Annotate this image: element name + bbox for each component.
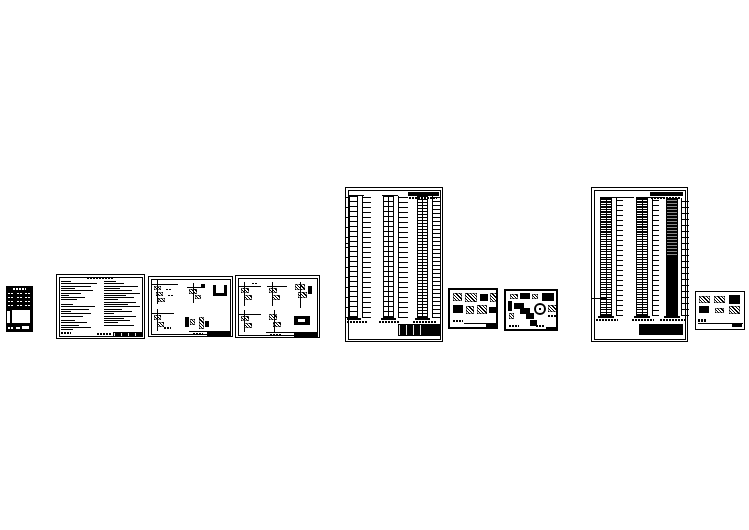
note-text-line	[104, 281, 116, 282]
note-text-line	[61, 309, 89, 310]
hatch-mark	[295, 284, 305, 290]
line-mark	[152, 284, 178, 285]
hatch-mark	[241, 288, 249, 293]
smudge-mark	[193, 333, 203, 335]
note-text-line	[61, 320, 75, 321]
reinforcement-tower	[666, 198, 678, 316]
hatch-mark	[699, 296, 710, 303]
note-text-line	[104, 290, 132, 291]
smudge-mark	[660, 319, 685, 321]
solid-mark	[224, 285, 227, 296]
hatch-mark	[465, 293, 477, 302]
note-text-line	[61, 283, 97, 284]
solid-mark	[213, 285, 216, 296]
line-mark	[267, 286, 287, 287]
hatch-mark	[244, 295, 252, 300]
smudge-mark	[596, 319, 618, 321]
solid-mark	[12, 310, 30, 323]
solid-mark	[486, 324, 497, 328]
note-text-line	[104, 309, 122, 310]
line-mark	[187, 287, 205, 288]
line-mark	[152, 313, 174, 314]
solid-mark	[526, 313, 534, 319]
hatch-mark	[532, 294, 538, 299]
smudge-mark	[97, 333, 111, 335]
solid-mark	[546, 327, 557, 331]
note-text-line	[104, 302, 136, 303]
note-text-line	[104, 293, 140, 294]
solid-mark	[508, 301, 512, 311]
hatch-mark	[548, 305, 557, 312]
ring-mark	[534, 303, 546, 315]
note-text-line	[104, 304, 128, 305]
line-mark	[157, 309, 158, 331]
line-mark	[244, 310, 245, 332]
hatch-mark	[269, 288, 277, 293]
solid-mark	[207, 332, 231, 336]
smudge-mark	[13, 288, 26, 290]
floor-tick-marks	[652, 198, 659, 316]
smudge-mark	[25, 305, 31, 306]
sheet-thumbnail-stair-details-2	[235, 275, 320, 338]
note-text-line	[61, 304, 73, 305]
hatch-mark	[199, 317, 204, 329]
note-text-line	[104, 295, 126, 296]
smudge-mark	[8, 293, 14, 294]
smudge-mark	[25, 297, 31, 298]
hatch-mark	[715, 308, 724, 313]
solid-mark	[201, 284, 205, 287]
floor-tick-marks	[616, 198, 623, 316]
note-text-line	[61, 306, 95, 307]
smudge-mark	[25, 301, 31, 302]
hatch-mark	[298, 292, 307, 298]
smudge-mark	[17, 293, 23, 294]
floor-tick-marks	[398, 196, 408, 318]
sheet-thumbnail-schedule	[6, 286, 33, 332]
smudge-mark	[166, 289, 172, 290]
note-text-line	[61, 293, 81, 294]
note-text-line	[61, 325, 79, 326]
line-mark	[193, 283, 194, 303]
solid-mark	[381, 318, 396, 320]
smudge-mark	[25, 293, 31, 294]
note-text-line	[104, 299, 118, 300]
note-text-line	[104, 318, 124, 319]
solid-mark	[480, 294, 488, 301]
hatch-mark	[195, 295, 201, 299]
solid-mark	[16, 327, 20, 329]
floor-tick-marks	[346, 196, 350, 318]
smudge-mark	[536, 325, 544, 327]
note-text-line	[61, 281, 71, 282]
hatch-mark	[241, 316, 249, 321]
solid-mark	[347, 318, 361, 320]
solid-mark	[453, 305, 463, 313]
tb-mark	[398, 324, 441, 336]
solid-mark	[205, 321, 209, 327]
note-text-line	[104, 320, 130, 321]
solid-mark	[7, 311, 10, 323]
smudge-mark	[548, 315, 556, 317]
solid-mark	[22, 326, 29, 329]
solid-mark	[732, 324, 742, 327]
line-mark	[157, 280, 158, 304]
line-mark	[300, 282, 301, 308]
sheet-thumbnail-stair-details-1	[148, 276, 233, 337]
smudge-mark	[270, 334, 282, 336]
smudge-mark	[164, 327, 171, 329]
note-text-line	[61, 288, 75, 289]
smudge-mark	[453, 320, 463, 322]
note-text-line	[61, 286, 91, 287]
sheet-thumbnail-general-notes	[56, 274, 145, 339]
solid-mark	[598, 316, 614, 318]
note-text-line	[61, 329, 73, 330]
floor-tick-marks	[362, 196, 371, 318]
line-mark	[266, 332, 318, 333]
smudge-mark	[168, 295, 174, 296]
hatch-mark	[272, 295, 280, 300]
smudge-mark	[8, 301, 14, 302]
hatch-mark	[190, 319, 195, 325]
line-mark	[244, 282, 245, 306]
solid-mark	[298, 319, 305, 322]
hatch-mark	[729, 306, 740, 314]
smudge-mark	[698, 319, 706, 322]
floor-tick-marks	[432, 196, 441, 318]
solid-mark	[308, 286, 312, 294]
note-text-line	[104, 288, 120, 289]
reinforcement-tower	[417, 196, 428, 318]
hatch-mark	[157, 322, 164, 327]
line-mark	[272, 282, 273, 306]
tb-mark	[113, 332, 143, 337]
hatch-mark	[156, 292, 163, 296]
hatch-mark	[509, 313, 514, 319]
smudge-mark	[8, 327, 14, 329]
solid-mark	[294, 333, 318, 337]
line-mark	[464, 323, 497, 324]
cad-drawing-preview-canvas	[0, 0, 749, 530]
note-text-line	[104, 283, 124, 284]
note-text-line	[61, 295, 69, 296]
line-mark	[189, 331, 231, 332]
hatch-mark	[714, 296, 725, 303]
sheet-thumbnail-details-b	[504, 289, 558, 331]
solid-mark	[729, 295, 740, 304]
smudge-mark	[379, 321, 400, 323]
note-text-line	[104, 311, 132, 312]
line-mark	[274, 310, 275, 332]
solid-mark	[664, 316, 680, 318]
floor-tick-marks	[681, 198, 689, 316]
solid-mark	[213, 293, 227, 296]
tb-mark	[639, 324, 683, 335]
solid-mark	[415, 318, 430, 320]
reinforcement-tower	[383, 196, 394, 318]
hatch-mark	[154, 315, 161, 320]
smudge-mark	[87, 277, 113, 279]
note-text-line	[61, 316, 83, 317]
note-text-line	[104, 325, 134, 326]
note-text-line	[104, 286, 138, 287]
hatch-mark	[244, 323, 252, 328]
hatch-mark	[490, 293, 497, 302]
note-text-line	[61, 327, 91, 328]
solid-mark	[489, 307, 497, 313]
line-mark	[698, 323, 743, 324]
hatch-mark	[477, 305, 487, 314]
solid-mark	[520, 293, 530, 299]
hatch-mark	[273, 322, 281, 327]
sheet-thumbnail-column-elevations-1	[345, 187, 443, 342]
note-text-line	[104, 322, 118, 323]
note-text-line	[61, 297, 85, 298]
note-text-line	[104, 306, 140, 307]
note-text-line	[61, 313, 91, 314]
sheet-thumbnail-column-elevations-2	[591, 187, 688, 342]
solid-mark	[294, 316, 310, 325]
smudge-mark	[17, 297, 23, 298]
hatch-mark	[510, 294, 518, 299]
hatch-mark	[453, 293, 462, 301]
solid-mark	[699, 306, 709, 313]
solid-mark	[634, 316, 650, 318]
smudge-mark	[8, 305, 14, 306]
note-text-line	[61, 299, 77, 300]
note-text-line	[61, 322, 87, 323]
note-text-line	[104, 316, 136, 317]
smudge-mark	[252, 283, 258, 284]
smudge-mark	[17, 301, 23, 302]
reinforcement-tower	[349, 196, 358, 318]
solid-mark	[650, 192, 683, 196]
note-text-line	[61, 311, 71, 312]
solid-mark	[514, 303, 524, 309]
solid-mark	[520, 308, 530, 314]
note-text-line	[61, 290, 93, 291]
solid-mark	[542, 293, 554, 301]
solid-mark	[530, 320, 537, 326]
hatch-mark	[269, 314, 277, 320]
sheet-thumbnail-details-a	[448, 288, 498, 329]
reinforcement-tower	[636, 198, 648, 316]
smudge-mark	[632, 319, 654, 321]
note-text-line	[104, 297, 134, 298]
hatch-mark	[158, 298, 165, 302]
smudge-mark	[8, 297, 14, 298]
smudge-mark	[413, 321, 436, 323]
hatch-mark	[154, 286, 161, 290]
hatch-mark	[189, 289, 197, 294]
line-mark	[239, 286, 261, 287]
note-text-line	[104, 313, 114, 314]
reinforcement-tower	[600, 198, 612, 316]
line-mark	[239, 314, 261, 315]
smudge-mark	[61, 332, 71, 334]
smudge-mark	[509, 325, 519, 327]
sheet-thumbnail-foundation-details	[695, 291, 745, 330]
smudge-mark	[17, 305, 23, 306]
smudge-mark	[347, 321, 367, 323]
solid-mark	[185, 317, 189, 327]
hatch-mark	[466, 306, 474, 314]
